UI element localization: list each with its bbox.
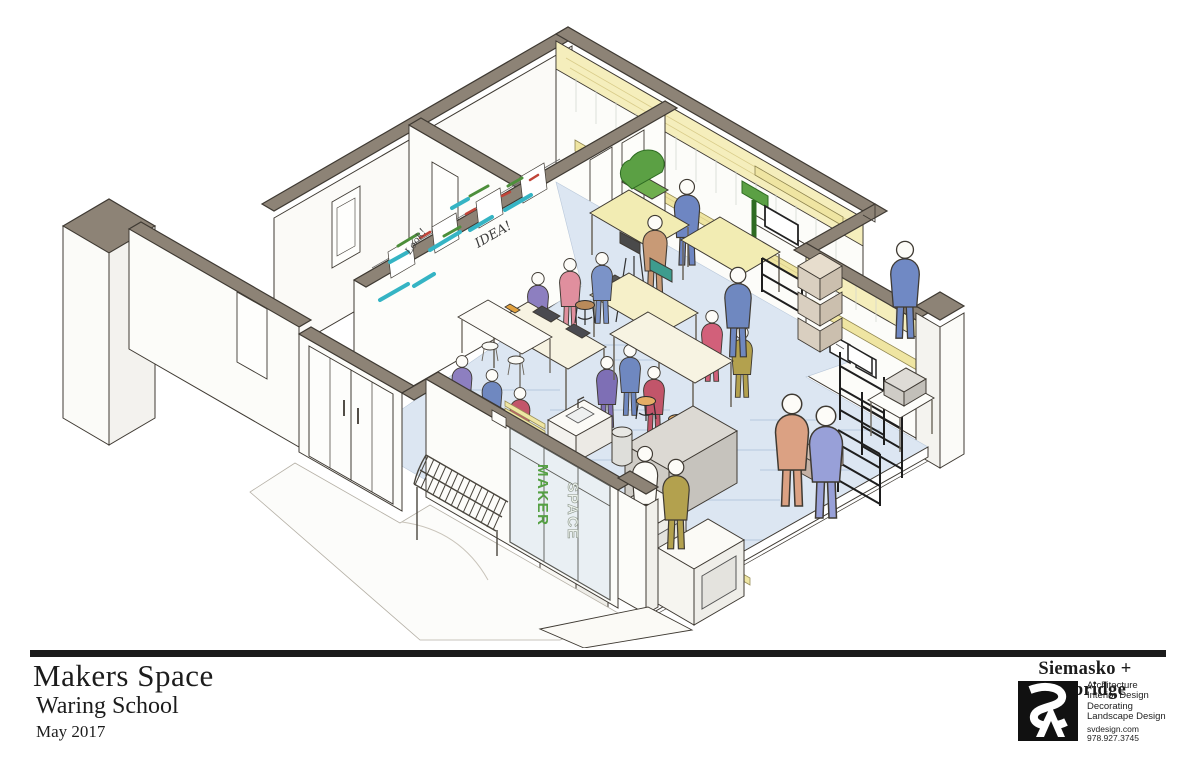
firm-phone: 978.927.3745 <box>1087 734 1139 743</box>
title-rule <box>30 650 1166 657</box>
sv-logo <box>1018 681 1078 741</box>
sign-maker: MAKER <box>534 464 551 527</box>
sign-space: SPACE <box>564 482 581 540</box>
service-item: Landscape Design <box>1087 712 1166 722</box>
project-title: Makers Space <box>33 658 214 694</box>
firm-contact: svdesign.com 978.927.3745 <box>1087 725 1139 744</box>
client-name: Waring School <box>36 693 179 720</box>
drawing-sheet: IDEA! Look! <box>0 0 1200 776</box>
isometric-rendering: IDEA! Look! <box>0 0 1200 648</box>
firm-services: Architecture Interior Design Decorating … <box>1087 681 1166 723</box>
sheet-date: May 2017 <box>36 722 105 742</box>
